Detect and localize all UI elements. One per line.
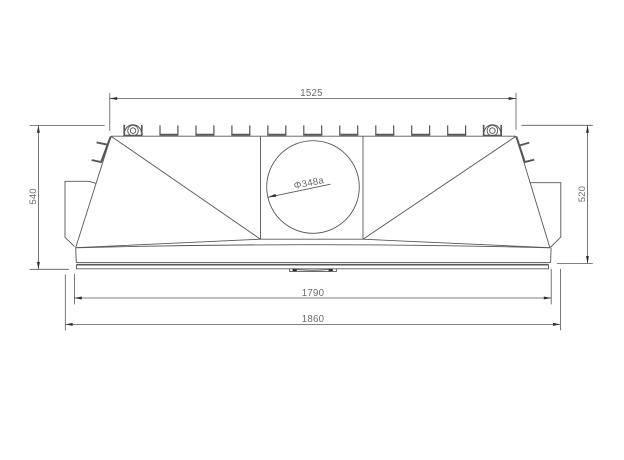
svg-text:1525: 1525 xyxy=(300,88,323,99)
svg-text:520: 520 xyxy=(577,186,587,202)
svg-text:1790: 1790 xyxy=(302,288,325,299)
svg-text:Φ348a: Φ348a xyxy=(293,175,325,192)
svg-text:1860: 1860 xyxy=(302,314,325,325)
svg-text:540: 540 xyxy=(28,188,38,204)
